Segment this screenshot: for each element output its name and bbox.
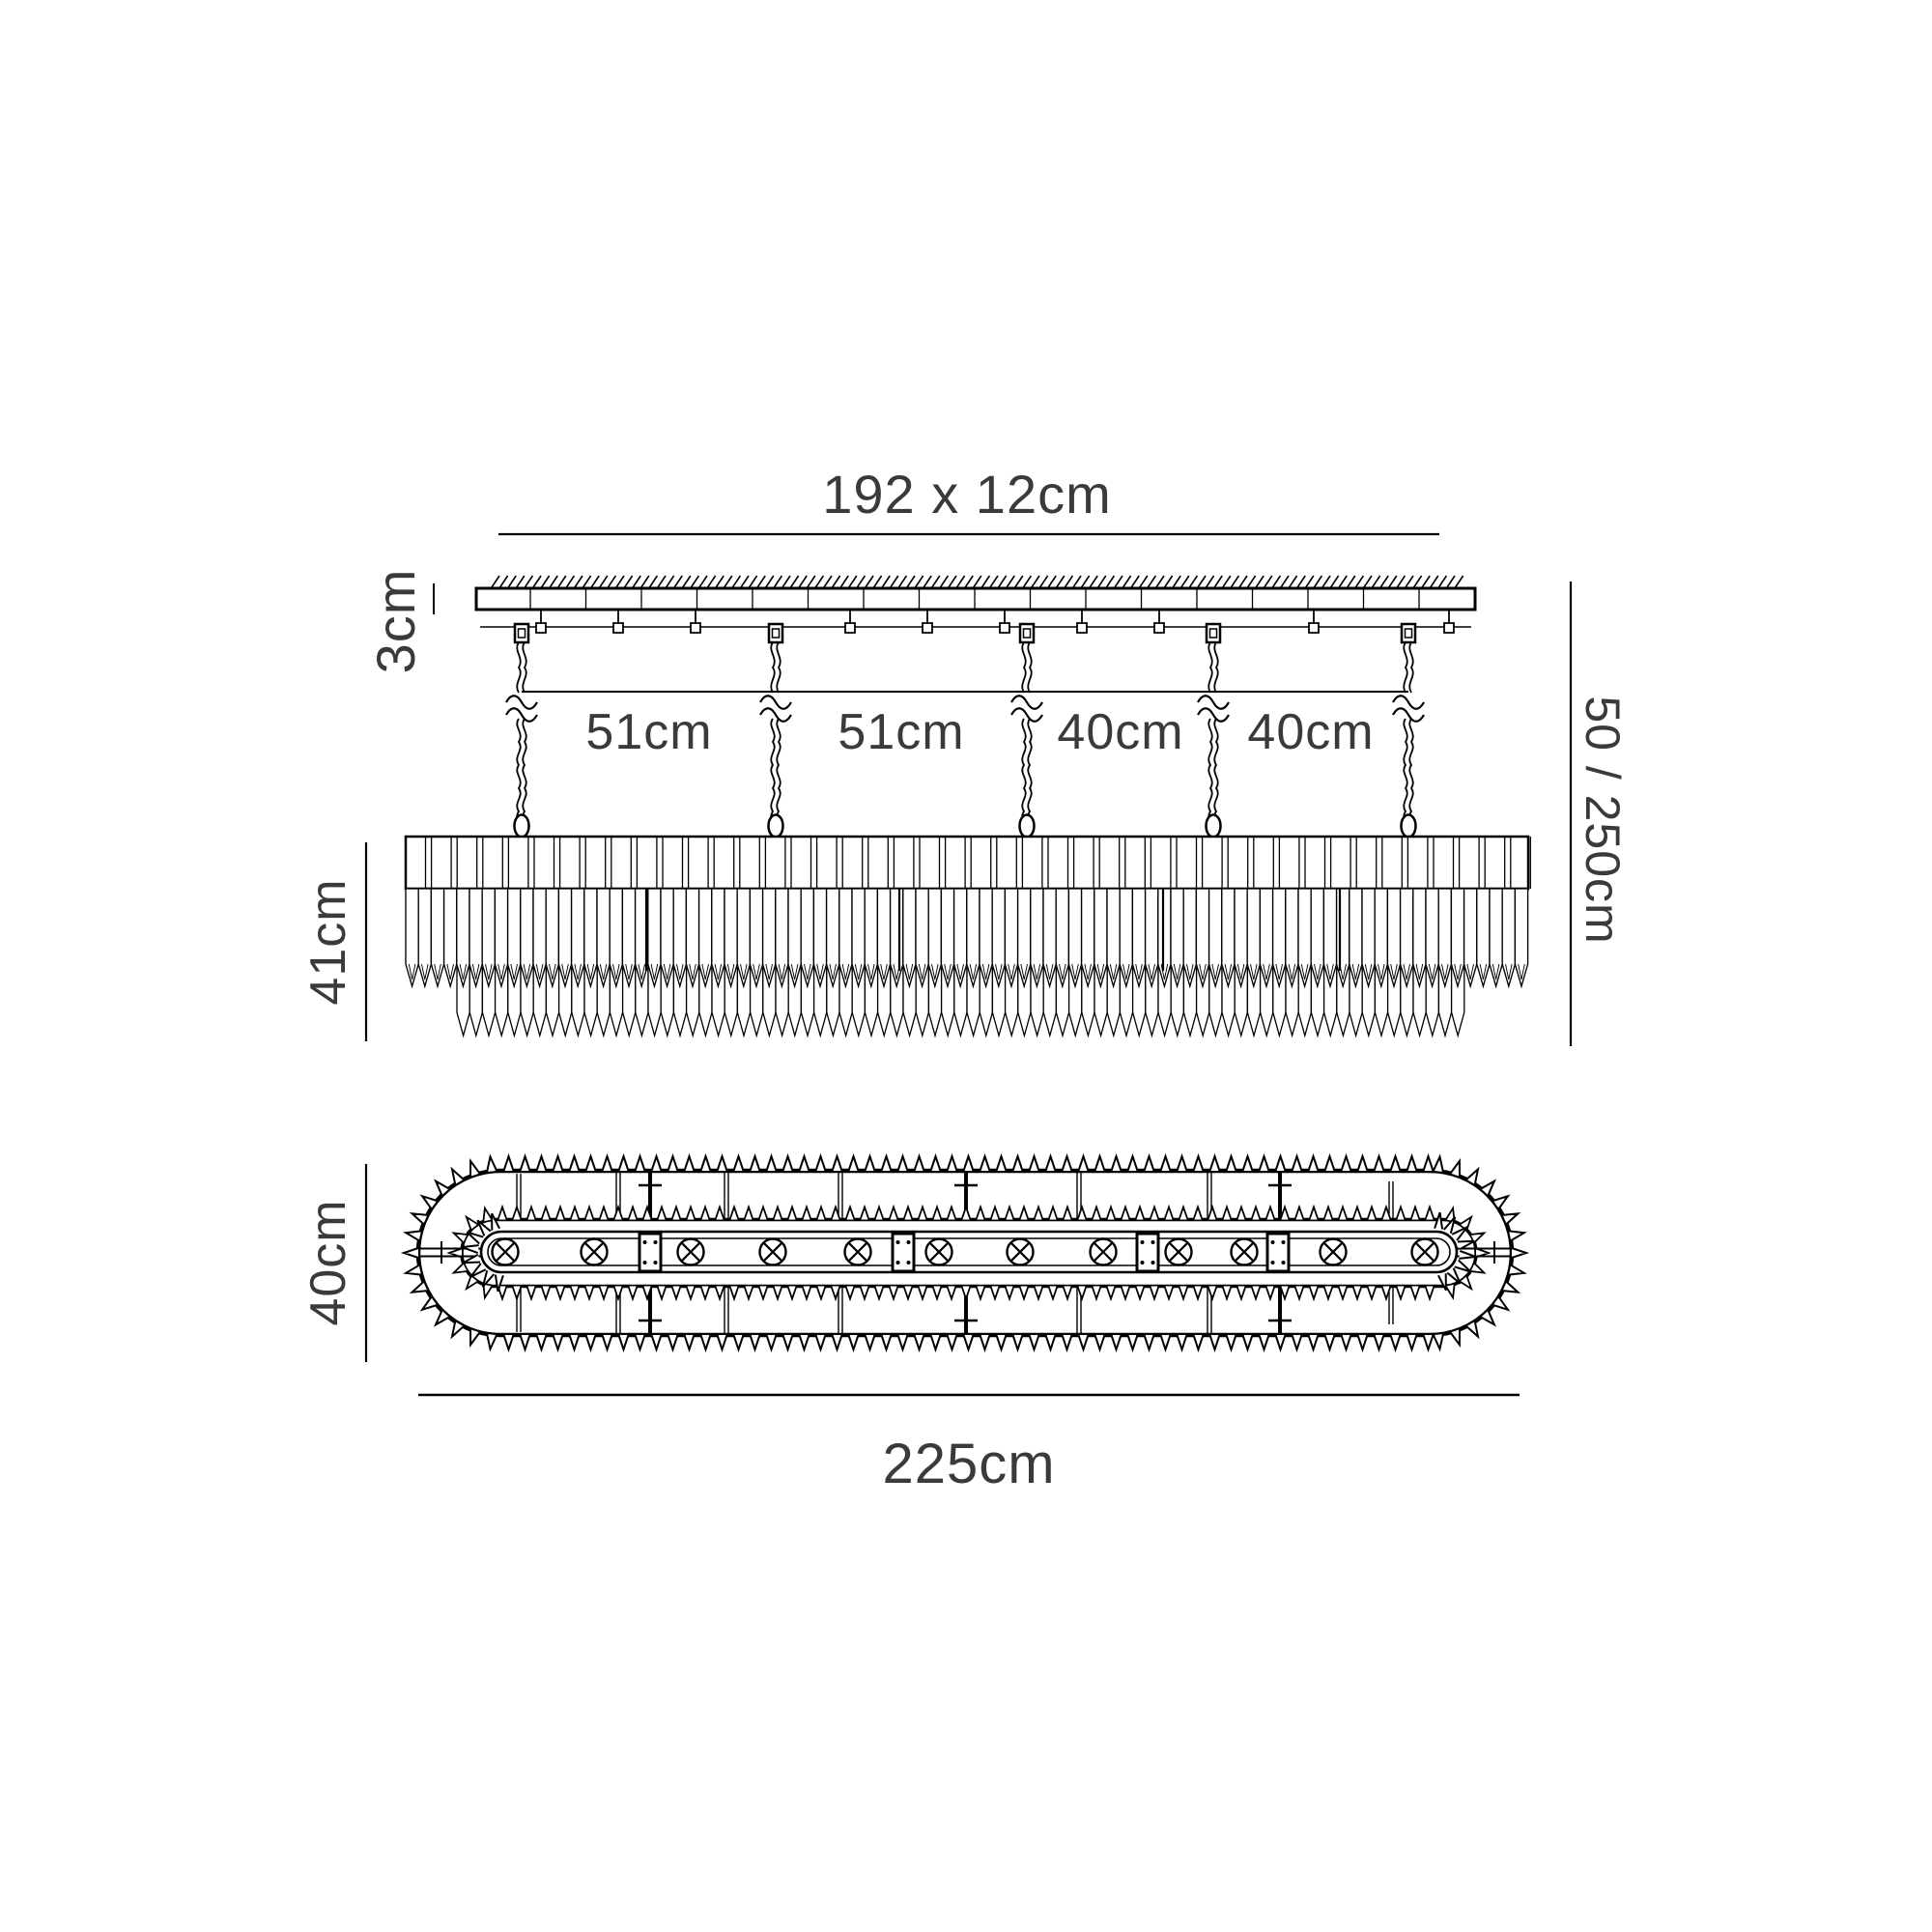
plan-depth-label: 40cm — [303, 1199, 354, 1325]
lamp-position-icon — [493, 1239, 519, 1265]
plan-width-label: 225cm — [882, 1436, 1055, 1492]
canopy-dimension-label: 192 x 12cm — [822, 468, 1112, 522]
plan-view — [404, 1156, 1526, 1350]
lamp-position-icon — [760, 1239, 786, 1265]
drop-height-label: 50 / 250cm — [1578, 696, 1627, 944]
suspension-chain — [1011, 624, 1042, 838]
lamp-position-icon — [1232, 1239, 1258, 1265]
chain-spacing-label-1: 51cm — [585, 707, 712, 757]
junction-box — [639, 1234, 661, 1271]
suspension-chain — [760, 624, 791, 838]
canopy-depth-label: 3cm — [369, 569, 423, 674]
lamp-position-icon — [845, 1239, 871, 1265]
lamp-position-icon — [1321, 1239, 1347, 1265]
chandelier-dimension-diagram: 192 x 12cm 3cm 51cm 51cm 40cm 40cm 50 / … — [0, 0, 1932, 1932]
suspension-chain — [506, 624, 537, 838]
plan-lamp-band — [481, 1232, 1457, 1272]
junction-box — [893, 1234, 914, 1271]
junction-box — [1267, 1234, 1289, 1271]
chain-spacing-label-3: 40cm — [1057, 707, 1183, 757]
suspension-chain — [1198, 624, 1229, 838]
lamp-position-icon — [1166, 1239, 1192, 1265]
junction-box — [1137, 1234, 1158, 1271]
chain-loop-connector — [515, 815, 529, 838]
suspension-chain — [1393, 624, 1424, 838]
lamp-position-icon — [1412, 1239, 1438, 1265]
chain-spacing-label-4: 40cm — [1247, 707, 1374, 757]
diagram-line-art — [0, 0, 1932, 1932]
chain-loop-connector — [1402, 815, 1416, 838]
chain-loop-connector — [1207, 815, 1221, 838]
chain-spacing-label-2: 51cm — [838, 707, 964, 757]
ceiling-plate — [476, 576, 1475, 633]
lamp-position-icon — [926, 1239, 952, 1265]
lamp-position-icon — [582, 1239, 608, 1265]
body-height-label: 41cm — [303, 878, 354, 1005]
chain-loop-connector — [769, 815, 783, 838]
lamp-position-icon — [1091, 1239, 1117, 1265]
lamp-position-icon — [678, 1239, 704, 1265]
lamp-position-icon — [1008, 1239, 1034, 1265]
crystal-body-side-view — [406, 837, 1530, 1036]
chain-loop-connector — [1020, 815, 1035, 838]
